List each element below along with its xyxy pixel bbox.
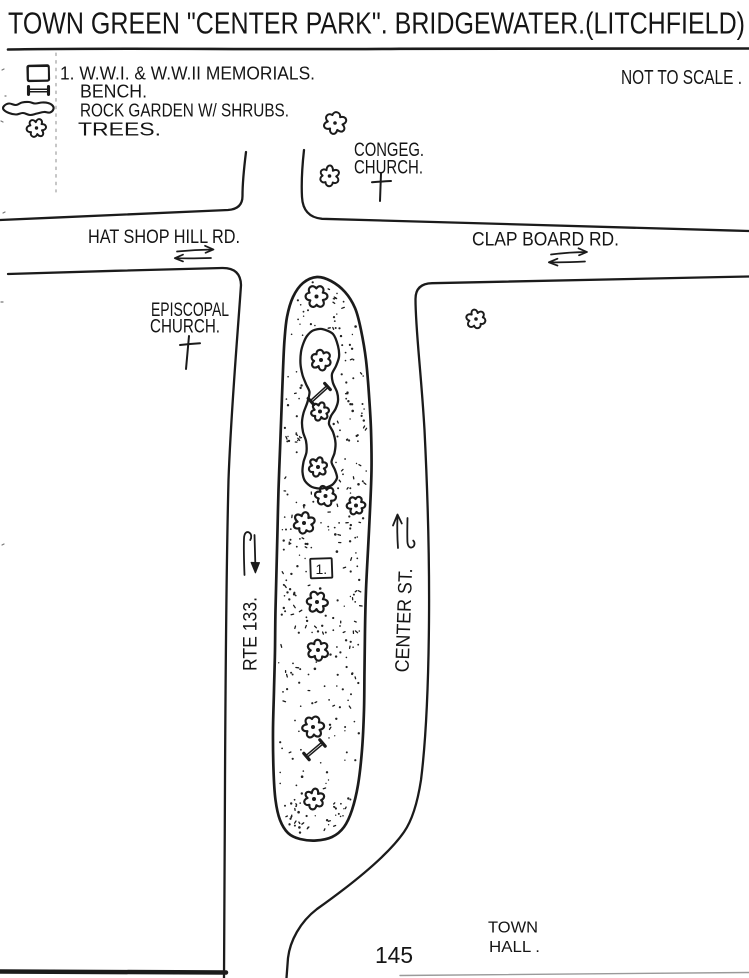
svg-text:145: 145: [375, 942, 413, 968]
svg-text:HALL .: HALL .: [489, 939, 540, 956]
svg-text:TOWN GREEN "CENTER PARK". BRID: TOWN GREEN "CENTER PARK". BRIDGEWATER.(L…: [8, 6, 745, 41]
svg-text:TOWN: TOWN: [488, 920, 538, 937]
svg-text:CLAP BOARD RD.: CLAP BOARD RD.: [472, 229, 619, 251]
svg-text:NOT TO SCALE .: NOT TO SCALE .: [621, 67, 742, 89]
svg-text:CHURCH.: CHURCH.: [354, 158, 423, 179]
svg-text:BENCH.: BENCH.: [80, 81, 147, 102]
svg-text:HAT SHOP HILL RD.: HAT SHOP HILL RD.: [88, 226, 240, 248]
svg-text:CENTER ST.: CENTER ST.: [392, 568, 418, 673]
svg-text:1.: 1.: [316, 561, 328, 577]
svg-text:RTE 133.: RTE 133.: [240, 597, 262, 671]
svg-text:CHURCH.: CHURCH.: [150, 317, 220, 338]
svg-text:TREES.: TREES.: [78, 119, 161, 140]
svg-text:ROCK GARDEN W/ SHRUBS.: ROCK GARDEN W/ SHRUBS.: [80, 100, 289, 121]
